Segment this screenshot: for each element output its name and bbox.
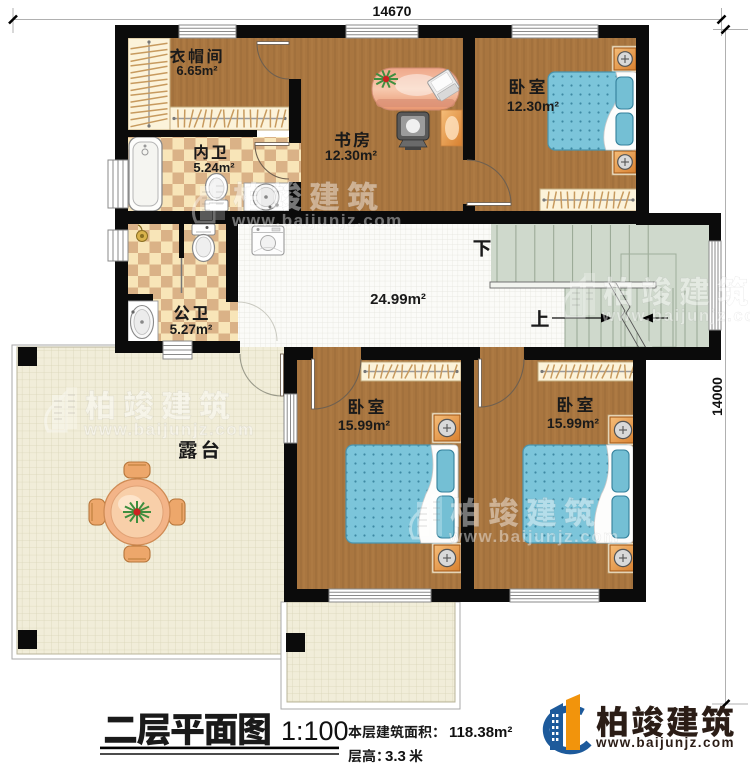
svg-text:www.baijunjz.com: www.baijunjz.com: [231, 211, 403, 230]
svg-text:12.30m²: 12.30m²: [507, 98, 559, 114]
svg-text:www.baijunjz.com: www.baijunjz.com: [83, 420, 255, 439]
svg-text:24.99m²: 24.99m²: [370, 291, 426, 308]
svg-text:1:100: 1:100: [281, 716, 349, 746]
svg-text:15.99m²: 15.99m²: [547, 415, 599, 431]
svg-text:14000: 14000: [709, 377, 725, 416]
svg-text:www.baijunjz.com: www.baijunjz.com: [595, 735, 735, 750]
svg-text:118.38m²: 118.38m²: [449, 724, 512, 741]
svg-text:5.24m²: 5.24m²: [193, 160, 235, 175]
svg-text:15.99m²: 15.99m²: [338, 417, 390, 433]
svg-text:12.30m²: 12.30m²: [325, 147, 377, 163]
svg-text:5.27m²: 5.27m²: [170, 322, 213, 337]
svg-text:6.65m²: 6.65m²: [176, 63, 218, 78]
svg-text:www.baijunjz.com: www.baijunjz.com: [448, 527, 620, 546]
svg-text:www.baijunjz.com: www.baijunjz.com: [601, 306, 750, 325]
svg-text:14670: 14670: [373, 3, 412, 19]
svg-text:3.3: 3.3: [385, 748, 406, 765]
